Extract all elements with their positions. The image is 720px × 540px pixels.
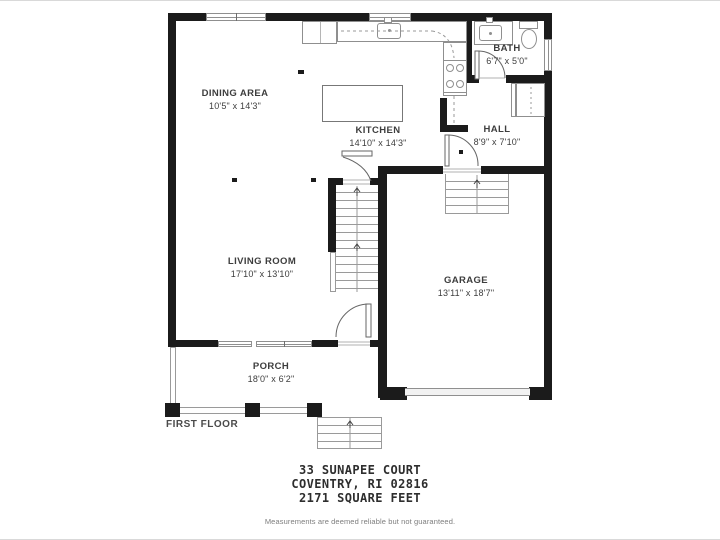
property-address: 33 SUNAPEE COURT COVENTRY, RI 02816 2171… [291,463,428,505]
disclaimer-text: Measurements are deemed reliable but not… [265,517,455,526]
main-stairs [336,185,378,292]
wall-segment [387,166,443,174]
room-label-hall: HALL 8'9" x 7'10" [474,124,521,148]
room-dims: 13'11" x 18'7" [438,287,495,299]
porch-steps [317,417,382,449]
room-name: GARAGE [438,275,495,287]
wall-tick [459,150,463,154]
sink-drain [489,32,492,35]
room-name: HALL [474,124,521,136]
address-line-2: COVENTRY, RI 02816 [291,477,428,491]
porch-post [165,403,180,417]
room-dims: 14'10" x 14'3" [349,137,406,149]
wall-segment [266,13,369,21]
wall-tick [311,178,316,182]
address-line-1: 33 SUNAPEE COURT [291,463,428,477]
wall-segment [378,166,387,398]
stove-burner [446,64,454,72]
room-dims: 18'0" x 6'2" [248,373,295,385]
stove-burner [446,80,454,88]
kitchen-counter [337,21,467,42]
porch-post [307,403,322,417]
room-dims: 8'9" x 7'10" [474,136,521,148]
window-mullion [284,341,285,347]
bath-faucet [486,17,493,23]
window-pane-line [219,344,251,345]
porch-door [336,304,371,337]
floor-label: FIRST FLOOR [166,419,238,430]
address-line-3: 2171 SQUARE FEET [291,491,428,505]
wall-segment [370,340,387,347]
kitchen-island [322,85,403,122]
room-label-bath: BATH 6'7" x 5'0" [486,43,528,67]
wall-segment [481,166,552,174]
room-name: PORCH [248,361,295,373]
garage-door [405,388,530,396]
room-name: BATH [486,43,528,55]
floor-plan-canvas: DINING AREA 10'5" x 14'3" KITCHEN 14'10"… [0,0,720,540]
porch-rail [170,347,176,409]
window [218,341,252,347]
wall-segment [440,125,468,132]
room-label-porch: PORCH 18'0" x 6'2" [248,361,295,385]
room-dims: 17'10" x 13'10" [228,268,296,280]
wall-segment [544,71,552,400]
wall-tick [232,178,237,182]
room-label-dining: DINING AREA 10'5" x 14'3" [202,88,269,112]
toilet-tank [519,21,538,29]
window [206,13,266,21]
wall-segment [312,340,338,347]
wall-segment [465,75,479,83]
room-name: LIVING ROOM [228,256,296,268]
room-label-kitchen: KITCHEN 14'10" x 14'3" [349,125,406,149]
wall-segment [328,178,336,252]
window-mullion [236,13,237,21]
wall-segment [168,13,176,347]
stair-rail [330,252,336,292]
page-top-edge [0,0,720,1]
sink-drain [388,29,391,32]
stove-burner [456,80,464,88]
room-name: KITCHEN [349,125,406,137]
window-pane-line [548,40,549,70]
window [256,341,312,347]
wall-segment [544,13,552,39]
closet [516,83,545,117]
bath-sink [479,25,502,41]
room-name: DINING AREA [202,88,269,100]
wall-tick [298,70,304,74]
wall-segment [380,387,407,400]
refrigerator [302,21,337,44]
stairs-door [342,151,372,181]
room-label-garage: GARAGE 13'11" x 18'7" [438,275,495,299]
refrigerator-door-line [320,22,321,43]
room-dims: 6'7" x 5'0" [486,55,528,67]
room-dims: 10'5" x 14'3" [202,100,269,112]
garage-stairs [445,174,509,214]
wall-segment [411,13,552,21]
window [544,39,552,71]
stove-burner [456,64,464,72]
wall-segment [506,75,552,83]
wall-segment [529,387,552,400]
wall-segment [168,340,218,347]
porch-post [245,403,260,417]
wall-segment [168,13,206,21]
kitchen-sink [377,23,401,39]
room-label-living: LIVING ROOM 17'10" x 13'10" [228,256,296,280]
